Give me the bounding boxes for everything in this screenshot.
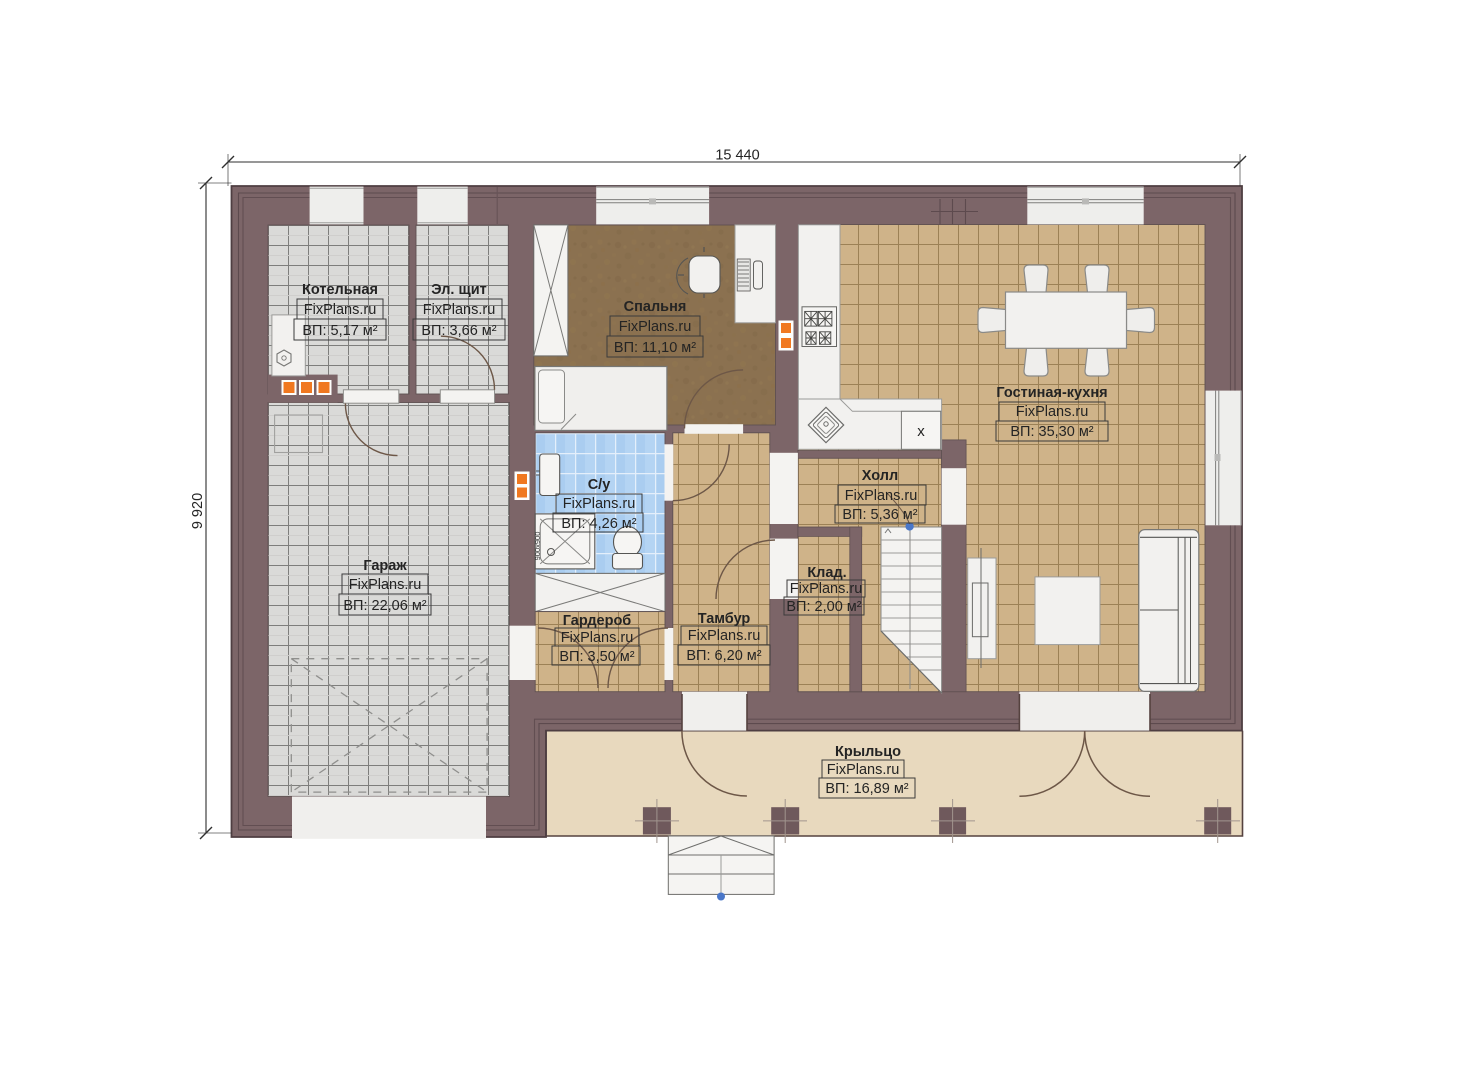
svg-text:С/у: С/у xyxy=(588,477,611,493)
svg-text:ВП: 5,36 м²: ВП: 5,36 м² xyxy=(842,507,917,523)
svg-text:ВП: 3,66 м²: ВП: 3,66 м² xyxy=(421,323,496,339)
svg-text:Котельная: Котельная xyxy=(302,282,378,298)
svg-text:9 920: 9 920 xyxy=(190,493,206,529)
svg-text:Эл. щит: Эл. щит xyxy=(431,282,486,298)
svg-text:FixPlans.ru: FixPlans.ru xyxy=(423,302,496,318)
svg-text:ВП: 6,20 м²: ВП: 6,20 м² xyxy=(686,648,761,664)
svg-text:Тамбур: Тамбур xyxy=(698,611,751,627)
svg-text:ВП: 35,30 м²: ВП: 35,30 м² xyxy=(1010,424,1093,440)
svg-text:FixPlans.ru: FixPlans.ru xyxy=(561,630,634,646)
svg-text:ВП: 5,17 м²: ВП: 5,17 м² xyxy=(302,323,377,339)
svg-text:FixPlans.ru: FixPlans.ru xyxy=(688,628,761,644)
svg-text:FixPlans.ru: FixPlans.ru xyxy=(619,319,692,335)
svg-text:Клад.: Клад. xyxy=(807,565,846,581)
svg-text:ВП: 2,00 м²: ВП: 2,00 м² xyxy=(786,599,861,615)
svg-text:ВП: 4,26 м²: ВП: 4,26 м² xyxy=(561,516,636,532)
svg-text:FixPlans.ru: FixPlans.ru xyxy=(304,302,377,318)
svg-text:x: x xyxy=(917,423,925,440)
svg-text:Гараж: Гараж xyxy=(363,558,407,574)
svg-text:ВП: 22,06 м²: ВП: 22,06 м² xyxy=(343,598,426,614)
svg-text:ВП: 11,10 м²: ВП: 11,10 м² xyxy=(614,340,696,356)
svg-text:FixPlans.ru: FixPlans.ru xyxy=(563,496,636,512)
svg-text:Спальня: Спальня xyxy=(624,299,687,315)
svg-text:FixPlans.ru: FixPlans.ru xyxy=(790,581,863,597)
svg-text:ВП: 3,50 м²: ВП: 3,50 м² xyxy=(559,649,634,665)
svg-text:15 440: 15 440 xyxy=(715,148,759,164)
svg-text:FixPlans.ru: FixPlans.ru xyxy=(1016,404,1089,420)
svg-text:Гостиная-кухня: Гостиная-кухня xyxy=(996,385,1107,401)
svg-text:900x900: 900x900 xyxy=(533,532,542,561)
svg-text:FixPlans.ru: FixPlans.ru xyxy=(845,488,918,504)
svg-text:FixPlans.ru: FixPlans.ru xyxy=(827,762,900,778)
svg-text:Крыльцо: Крыльцо xyxy=(835,744,901,760)
svg-text:Гардероб: Гардероб xyxy=(563,613,632,629)
svg-text:ВП: 16,89 м²: ВП: 16,89 м² xyxy=(825,781,908,797)
svg-text:Холл: Холл xyxy=(862,468,898,484)
svg-text:FixPlans.ru: FixPlans.ru xyxy=(349,577,422,593)
